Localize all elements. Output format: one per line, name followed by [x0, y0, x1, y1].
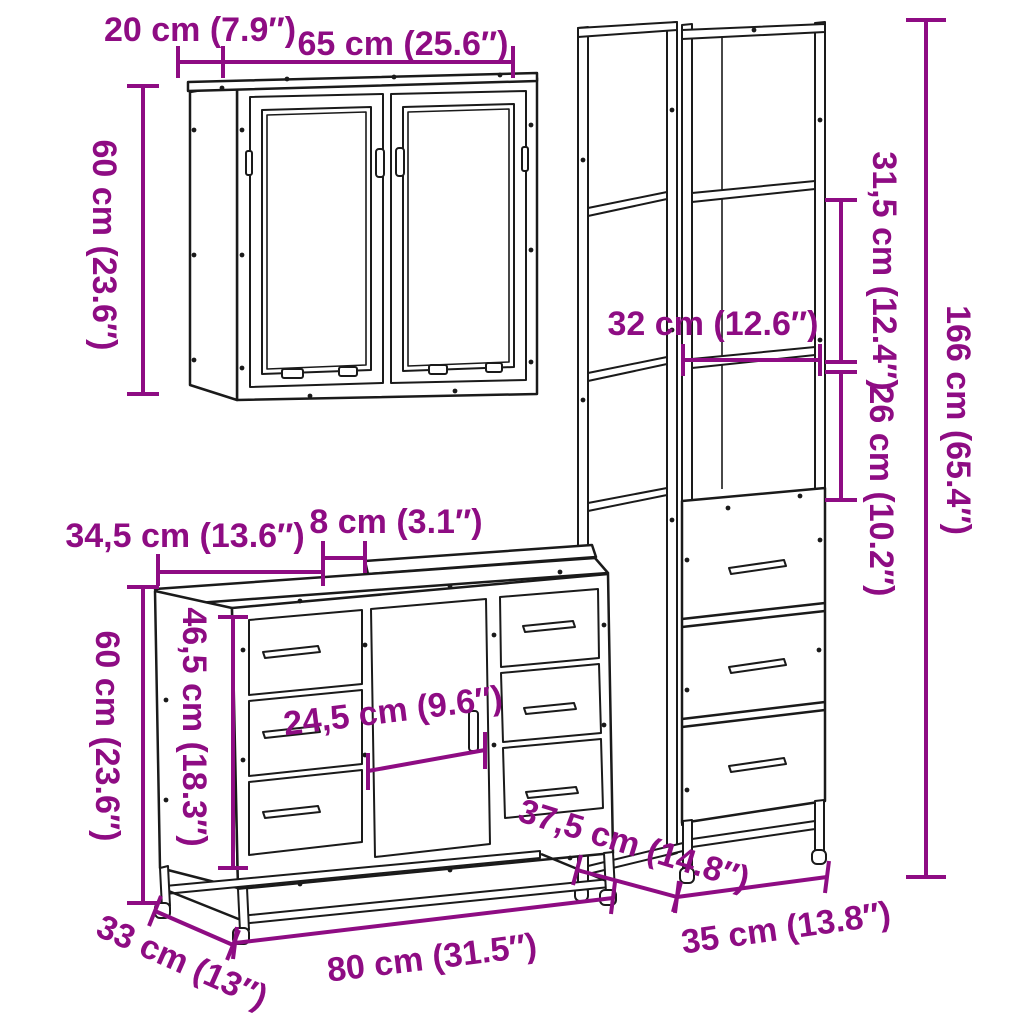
- label-tall-width: 35 cm (13.8″): [679, 895, 893, 962]
- wall-bottom-tab: [339, 367, 357, 376]
- dim-sink-height-line: [127, 587, 159, 903]
- label-sink-top-gap: 8 cm (3.1″): [309, 503, 482, 541]
- tall-front-right-leg: [815, 800, 824, 854]
- label-wall-width: 65 cm (25.6″): [298, 25, 509, 63]
- label-wall-height: 60 cm (23.6″): [85, 140, 123, 351]
- diagram-canvas: 20 cm (7.9″) 65 cm (25.6″) 60 cm (23.6″)…: [0, 0, 1024, 1024]
- label-sink-side-height: 46,5 cm (18.3″): [175, 607, 213, 846]
- dim-tall-upper-shelf-gap-line: [825, 200, 857, 362]
- tall-side-shelf-2: [588, 357, 667, 381]
- dim-tall-lower-shelf-gap-line: [825, 372, 857, 500]
- product-dimension-diagram: 20 cm (7.9″) 65 cm (25.6″) 60 cm (23.6″)…: [0, 0, 1024, 1024]
- label-sink-height: 60 cm (23.6″): [88, 631, 126, 842]
- wall-door-right-mirror: [403, 104, 514, 371]
- label-tall-upper-shelf-gap: 31,5 cm (12.4″): [865, 151, 903, 390]
- wall-bottom-tab: [429, 365, 447, 374]
- tall-front-right-foot: [812, 850, 826, 864]
- tall-side-top-rail: [578, 22, 677, 37]
- wall-left-side-panel: [190, 84, 237, 400]
- dim-sink-top-gap-line: [323, 541, 365, 573]
- wall-cabinet-drawing: [188, 73, 537, 400]
- label-tall-lower-shelf-gap: 26 cm (10.2″): [862, 386, 900, 597]
- wall-bottom-tab: [486, 363, 502, 372]
- dim-wall-height-line: [127, 86, 159, 394]
- wall-door-left-hinge: [246, 151, 252, 175]
- tall-bottom-front-rail: [692, 821, 815, 847]
- tall-side-shelf-1: [588, 192, 667, 216]
- tall-side-shelf-3: [588, 488, 667, 511]
- wall-door-left-mirror: [262, 107, 371, 374]
- wall-door-left-handle: [376, 149, 384, 177]
- wall-door-right-handle: [396, 148, 404, 176]
- tall-side-front-post: [667, 22, 677, 856]
- tall-shelf-2-front: [692, 347, 815, 368]
- label-sink-top-left-width: 34,5 cm (13.6″): [65, 517, 304, 555]
- sink-front-ring-bar: [240, 879, 610, 924]
- label-wall-depth: 20 cm (7.9″): [104, 11, 296, 49]
- tall-shelf-1-front: [692, 181, 815, 202]
- sink-cabinet-drawing: [155, 545, 616, 944]
- wall-bottom-tab: [282, 369, 303, 378]
- label-sink-width: 80 cm (31.5″): [325, 926, 539, 989]
- wall-door-right-hinge: [522, 147, 528, 171]
- sink-front-left-leg: [238, 888, 249, 931]
- tall-drawer-box: [682, 488, 825, 823]
- sink-right-drawer-2: [501, 664, 601, 742]
- sink-rear-left-leg: [160, 866, 170, 908]
- label-tall-shelf-width: 32 cm (12.6″): [608, 305, 819, 343]
- label-tall-height: 166 cm (65.4″): [939, 305, 977, 535]
